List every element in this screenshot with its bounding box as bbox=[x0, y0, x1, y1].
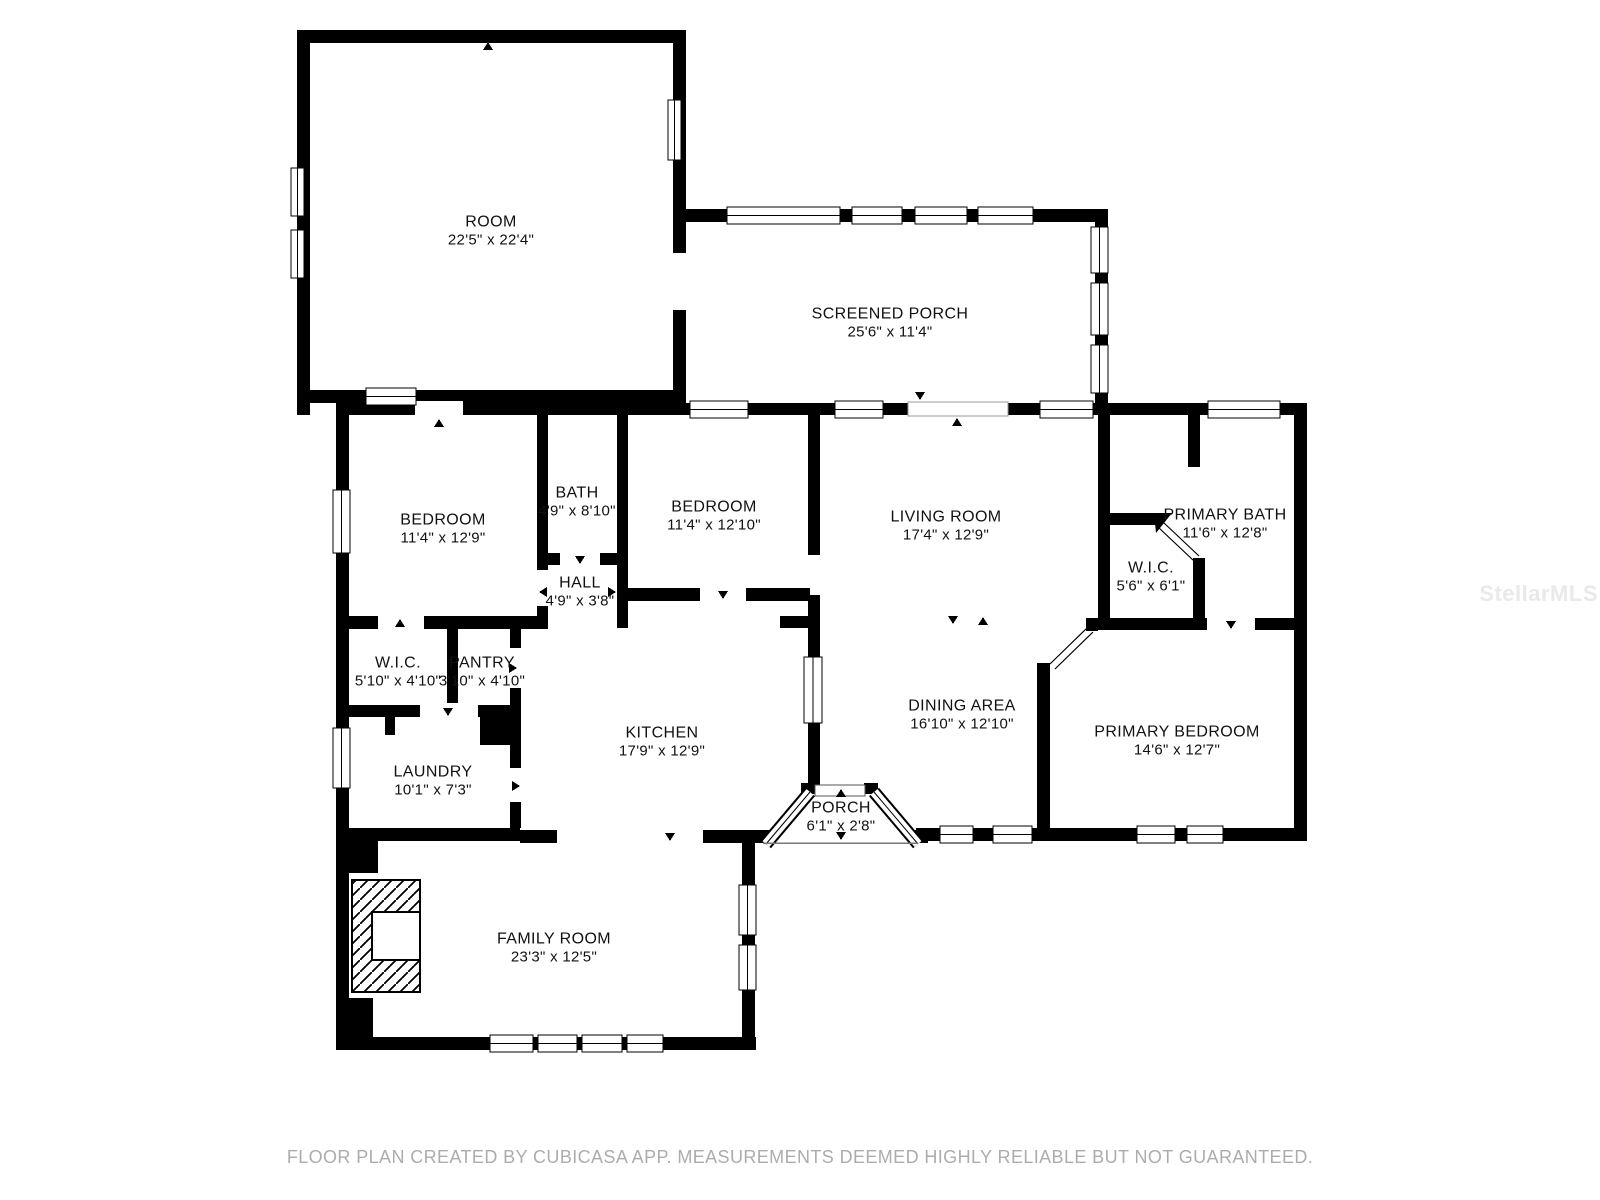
room-label-bedroom-1: BEDROOM11'4" x 12'9" bbox=[400, 511, 485, 548]
room-label-dining-area: DINING AREA16'10" x 12'10" bbox=[908, 697, 1016, 734]
door-arrows bbox=[299, 42, 1236, 841]
room-label-pantry: PANTRY3'10" x 4'10" bbox=[439, 654, 525, 691]
room-label-bath: BATH4'9" x 8'10" bbox=[538, 484, 616, 521]
sliding-door bbox=[908, 402, 1008, 416]
room-label-laundry: LAUNDRY10'1" x 7'3" bbox=[394, 763, 473, 800]
fireplace bbox=[352, 880, 420, 992]
room-label-screened-porch: SCREENED PORCH25'6" x 11'4" bbox=[812, 305, 969, 342]
room-label-hall: HALL4'9" x 3'8" bbox=[546, 574, 615, 611]
room-label-wic: W.I.C.5'10" x 4'10" bbox=[355, 654, 441, 691]
floor-plan-page: ROOM22'5" x 22'4" SCREENED PORCH25'6" x … bbox=[0, 0, 1600, 1200]
floor-plan-drawing bbox=[0, 0, 1600, 1200]
room-label-room: ROOM22'5" x 22'4" bbox=[448, 213, 534, 250]
room-label-family-room: FAMILY ROOM23'3" x 12'5" bbox=[497, 930, 611, 967]
dining-hall-door bbox=[1037, 618, 1098, 677]
room-label-primary-bedroom: PRIMARY BEDROOM14'6" x 12'7" bbox=[1094, 723, 1259, 760]
room-label-kitchen: KITCHEN17'9" x 12'9" bbox=[619, 724, 705, 761]
room-label-porch: PORCH6'1" x 2'8" bbox=[807, 799, 876, 836]
footer-disclaimer: FLOOR PLAN CREATED BY CUBICASA APP. MEAS… bbox=[0, 1147, 1600, 1168]
room-label-primary-bath: PRIMARY BATH11'6" x 12'8" bbox=[1163, 506, 1286, 543]
stellar-mls-watermark: StellarMLS bbox=[1479, 581, 1598, 607]
room-label-living-room: LIVING ROOM17'4" x 12'9" bbox=[890, 508, 1001, 545]
room-label-bedroom-2: BEDROOM11'4" x 12'10" bbox=[667, 498, 761, 535]
room-label-primary-wic: W.I.C.5'6" x 6'1" bbox=[1117, 559, 1186, 596]
